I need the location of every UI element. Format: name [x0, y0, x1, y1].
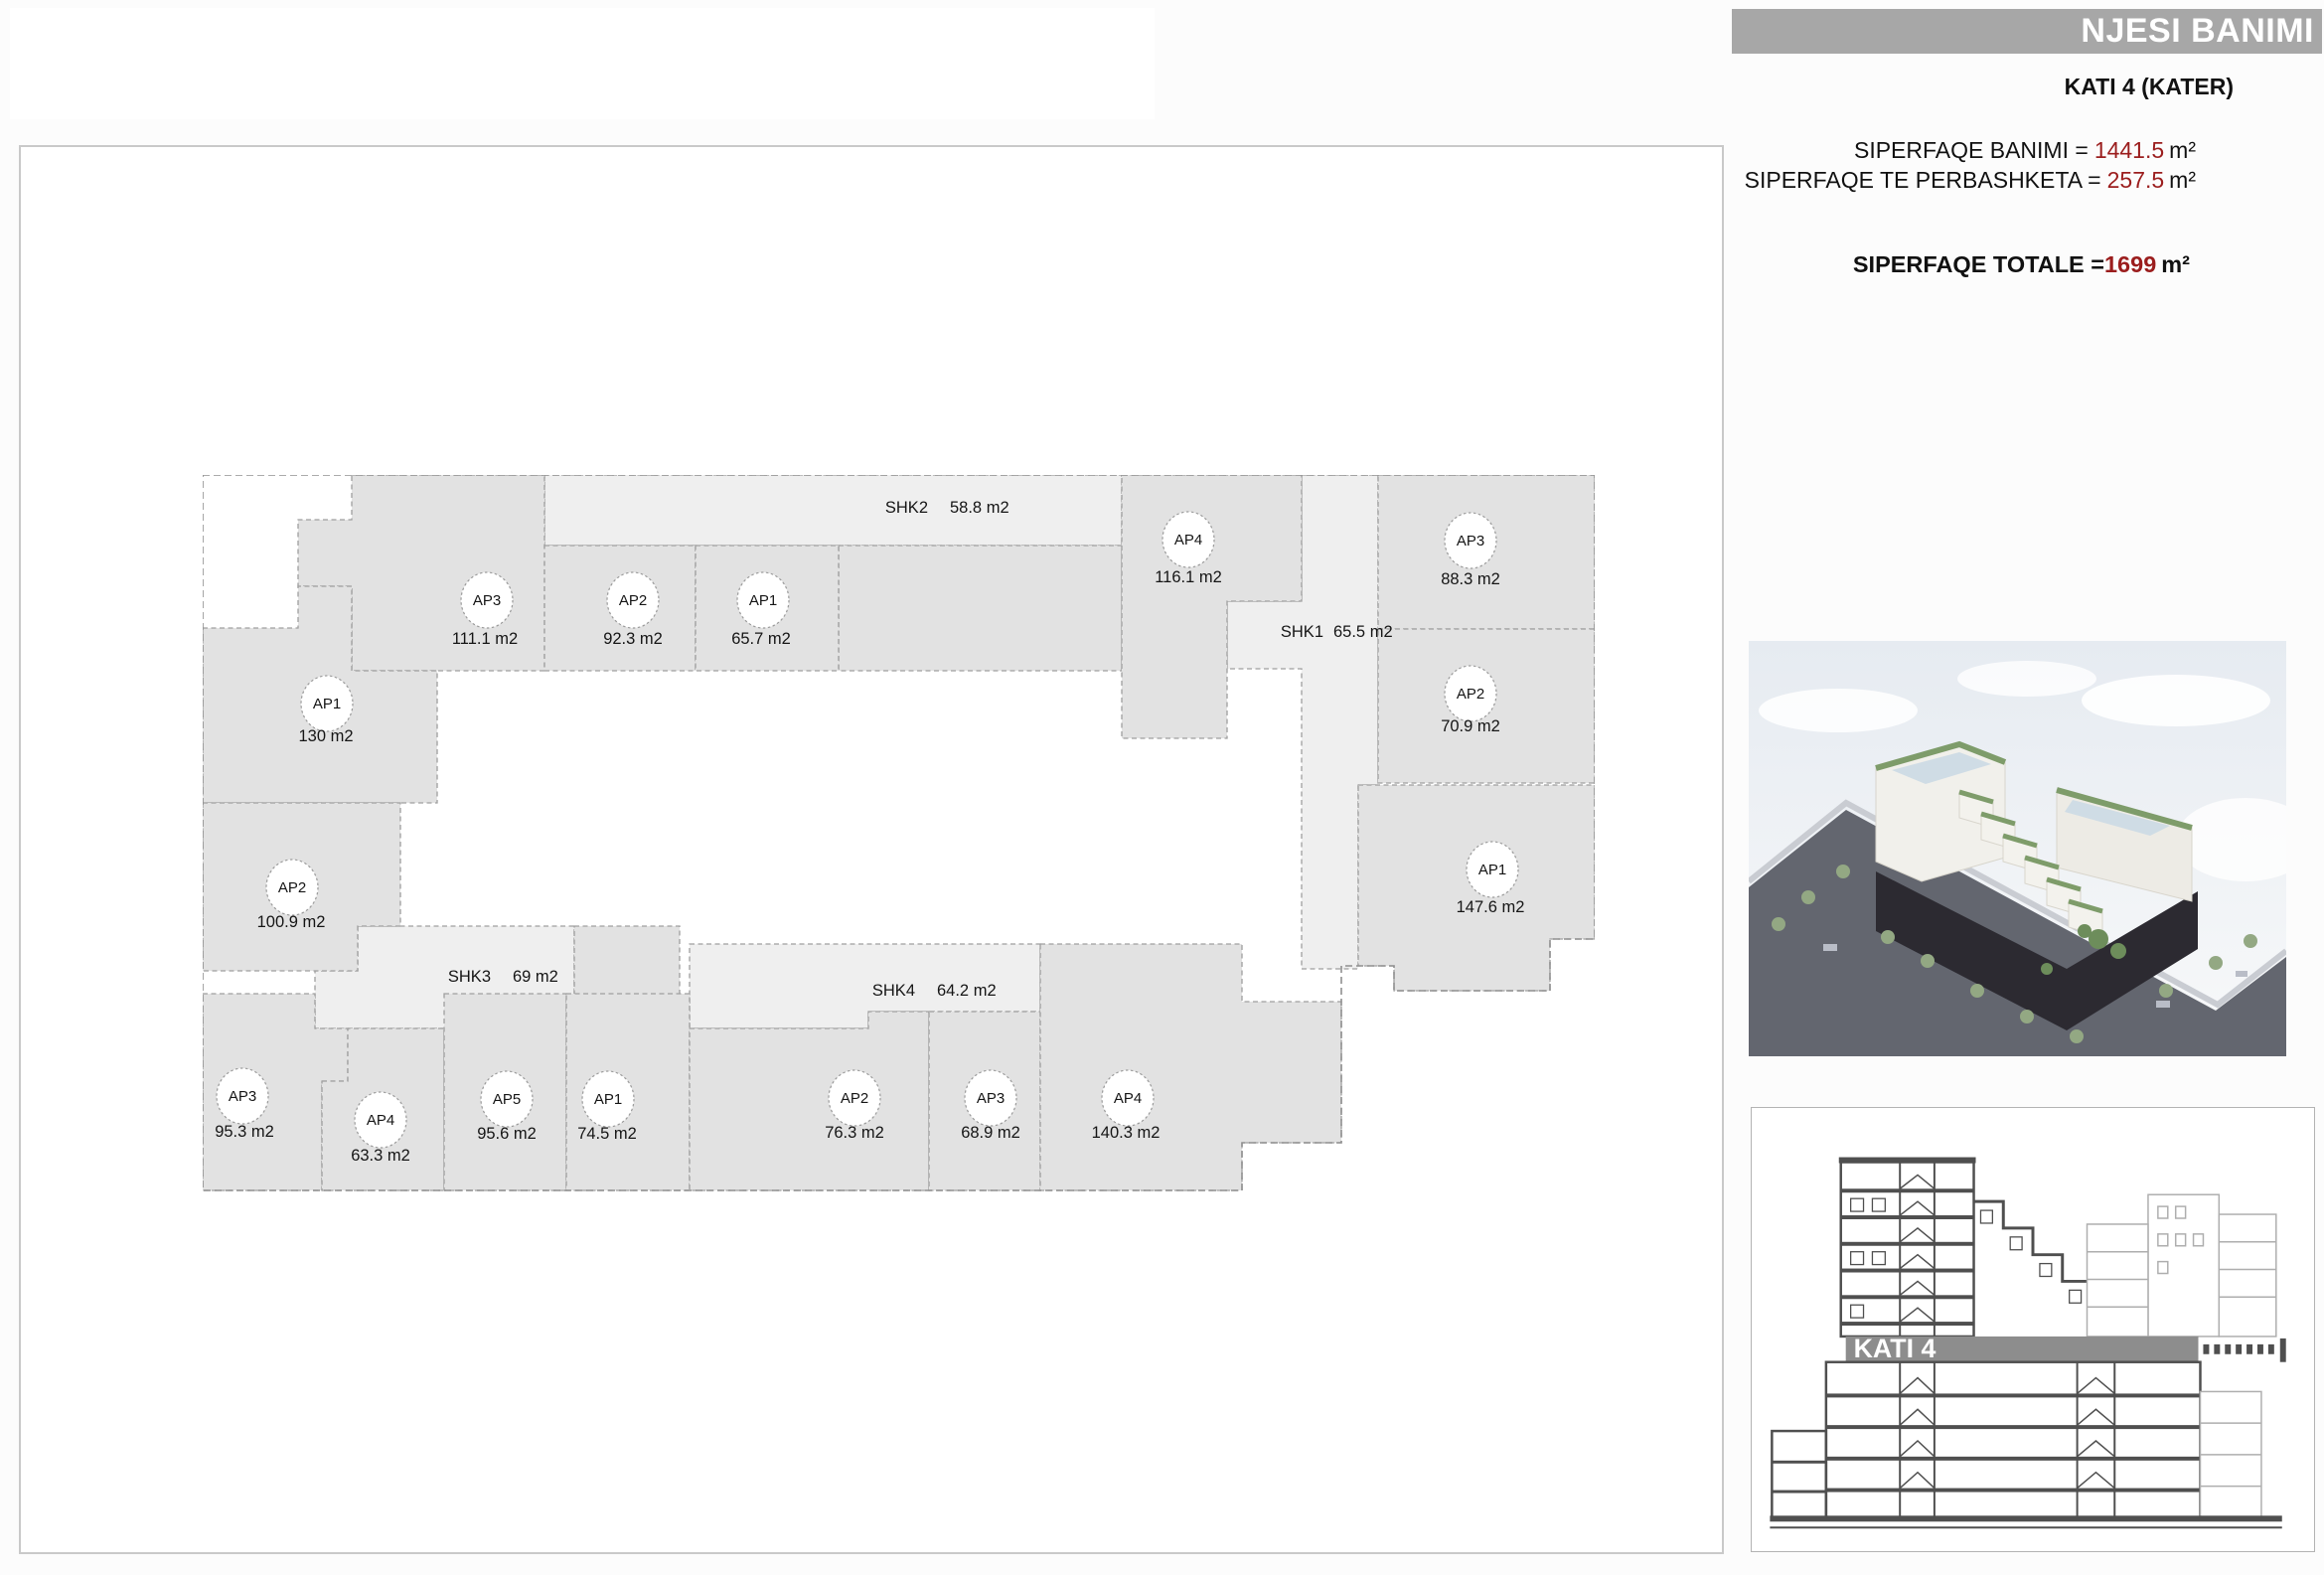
svg-text:95.6 m2: 95.6 m2: [477, 1125, 537, 1143]
svg-text:70.9 m2: 70.9 m2: [1441, 717, 1500, 735]
total-label: SIPERFAQE TOTALE =: [1853, 251, 2104, 277]
building-rendering-image: [1749, 641, 2286, 1056]
stat-line-perbashketa: SIPERFAQE TE PERBASHKETA =257.5m²: [1745, 165, 2196, 195]
svg-text:63.3 m2: 63.3 m2: [351, 1147, 410, 1165]
svg-text:116.1 m2: 116.1 m2: [1155, 568, 1222, 586]
total-unit: m²: [2161, 251, 2190, 277]
stat-value: 257.5: [2107, 167, 2165, 193]
svg-text:AP2: AP2: [841, 1090, 868, 1107]
svg-text:AP1: AP1: [749, 592, 777, 609]
total-value: 1699: [2104, 251, 2156, 277]
svg-text:68.9 m2: 68.9 m2: [961, 1124, 1020, 1142]
svg-text:69 m2: 69 m2: [513, 968, 558, 986]
building-rendering: [1749, 641, 2286, 1056]
svg-text:AP4: AP4: [1174, 532, 1202, 549]
room-badge: AP4 63.3 m2: [351, 1092, 410, 1165]
floor-plan-panel: AP3 111.1 m2 AP2 92.3 m2 AP1 65.7 m2 AP4…: [19, 145, 1724, 1554]
stat-label: SIPERFAQE BANIMI =: [1854, 137, 2089, 163]
svg-text:88.3 m2: 88.3 m2: [1441, 570, 1500, 588]
floor-title: KATI 4 (KATER): [2065, 74, 2234, 100]
ring-segment: [839, 546, 1122, 671]
svg-text:147.6 m2: 147.6 m2: [1457, 898, 1525, 916]
svg-text:58.8 m2: 58.8 m2: [950, 499, 1009, 517]
svg-text:SHK3: SHK3: [448, 968, 491, 986]
room-ap2-bottom: [690, 1012, 929, 1190]
corridor-shk2: [544, 475, 1122, 546]
svg-text:AP1: AP1: [313, 696, 341, 712]
room-badge: AP3 88.3 m2: [1441, 513, 1500, 588]
top-strip: [10, 8, 1155, 119]
room-badge: AP1 130 m2: [298, 676, 353, 745]
area-stats: SIPERFAQE BANIMI =1441.5m² SIPERFAQE TE …: [1745, 135, 2196, 195]
svg-text:SHK4: SHK4: [872, 982, 915, 1000]
sheet: AP3 111.1 m2 AP2 92.3 m2 AP1 65.7 m2 AP4…: [0, 0, 2324, 1575]
svg-text:AP3: AP3: [229, 1088, 256, 1105]
svg-text:95.3 m2: 95.3 m2: [215, 1123, 274, 1141]
svg-text:AP4: AP4: [1114, 1090, 1142, 1107]
svg-text:130 m2: 130 m2: [298, 727, 353, 745]
svg-text:100.9 m2: 100.9 m2: [257, 913, 326, 931]
room-badge: AP2 92.3 m2: [603, 572, 663, 648]
svg-text:AP3: AP3: [1457, 533, 1484, 550]
svg-text:AP2: AP2: [619, 592, 647, 609]
svg-text:SHK2: SHK2: [885, 499, 928, 517]
svg-text:AP3: AP3: [473, 592, 501, 609]
svg-text:AP5: AP5: [493, 1091, 521, 1108]
svg-text:AP1: AP1: [1478, 862, 1506, 878]
svg-text:65.7 m2: 65.7 m2: [731, 630, 791, 648]
svg-text:140.3 m2: 140.3 m2: [1092, 1124, 1161, 1142]
section-drawing: KATI 4: [1752, 1108, 2314, 1551]
stat-unit: m²: [2169, 167, 2196, 193]
svg-text:65.5 m2: 65.5 m2: [1333, 623, 1393, 641]
stat-value: 1441.5: [2094, 137, 2164, 163]
stat-line-banimi: SIPERFAQE BANIMI =1441.5m²: [1745, 135, 2196, 165]
svg-text:AP2: AP2: [1457, 686, 1484, 703]
sheet-title-bar: NJESI BANIMI: [1732, 9, 2322, 54]
svg-text:AP3: AP3: [977, 1090, 1005, 1107]
floor-plan: AP3 111.1 m2 AP2 92.3 m2 AP1 65.7 m2 AP4…: [203, 475, 1595, 1192]
svg-text:SHK1: SHK1: [1281, 623, 1323, 641]
corridor-label: SHK1 65.5 m2: [1281, 623, 1393, 641]
stat-label: SIPERFAQE TE PERBASHKETA =: [1745, 167, 2101, 193]
svg-text:111.1 m2: 111.1 m2: [452, 630, 518, 648]
section-panel: KATI 4: [1751, 1107, 2315, 1552]
svg-text:AP1: AP1: [594, 1091, 622, 1108]
total-area-line: SIPERFAQE TOTALE =1699m²: [1853, 251, 2190, 278]
kati4-band-label: KATI 4: [1854, 1334, 1937, 1363]
svg-text:AP2: AP2: [278, 879, 306, 896]
room-ap4b-bottom: [1040, 944, 1341, 1190]
svg-text:64.2 m2: 64.2 m2: [937, 982, 997, 1000]
svg-text:76.3 m2: 76.3 m2: [825, 1124, 884, 1142]
svg-text:74.5 m2: 74.5 m2: [577, 1125, 637, 1143]
stat-unit: m²: [2169, 137, 2196, 163]
svg-text:92.3 m2: 92.3 m2: [603, 630, 663, 648]
sheet-title: NJESI BANIMI: [2081, 12, 2314, 50]
svg-text:AP4: AP4: [367, 1112, 394, 1129]
